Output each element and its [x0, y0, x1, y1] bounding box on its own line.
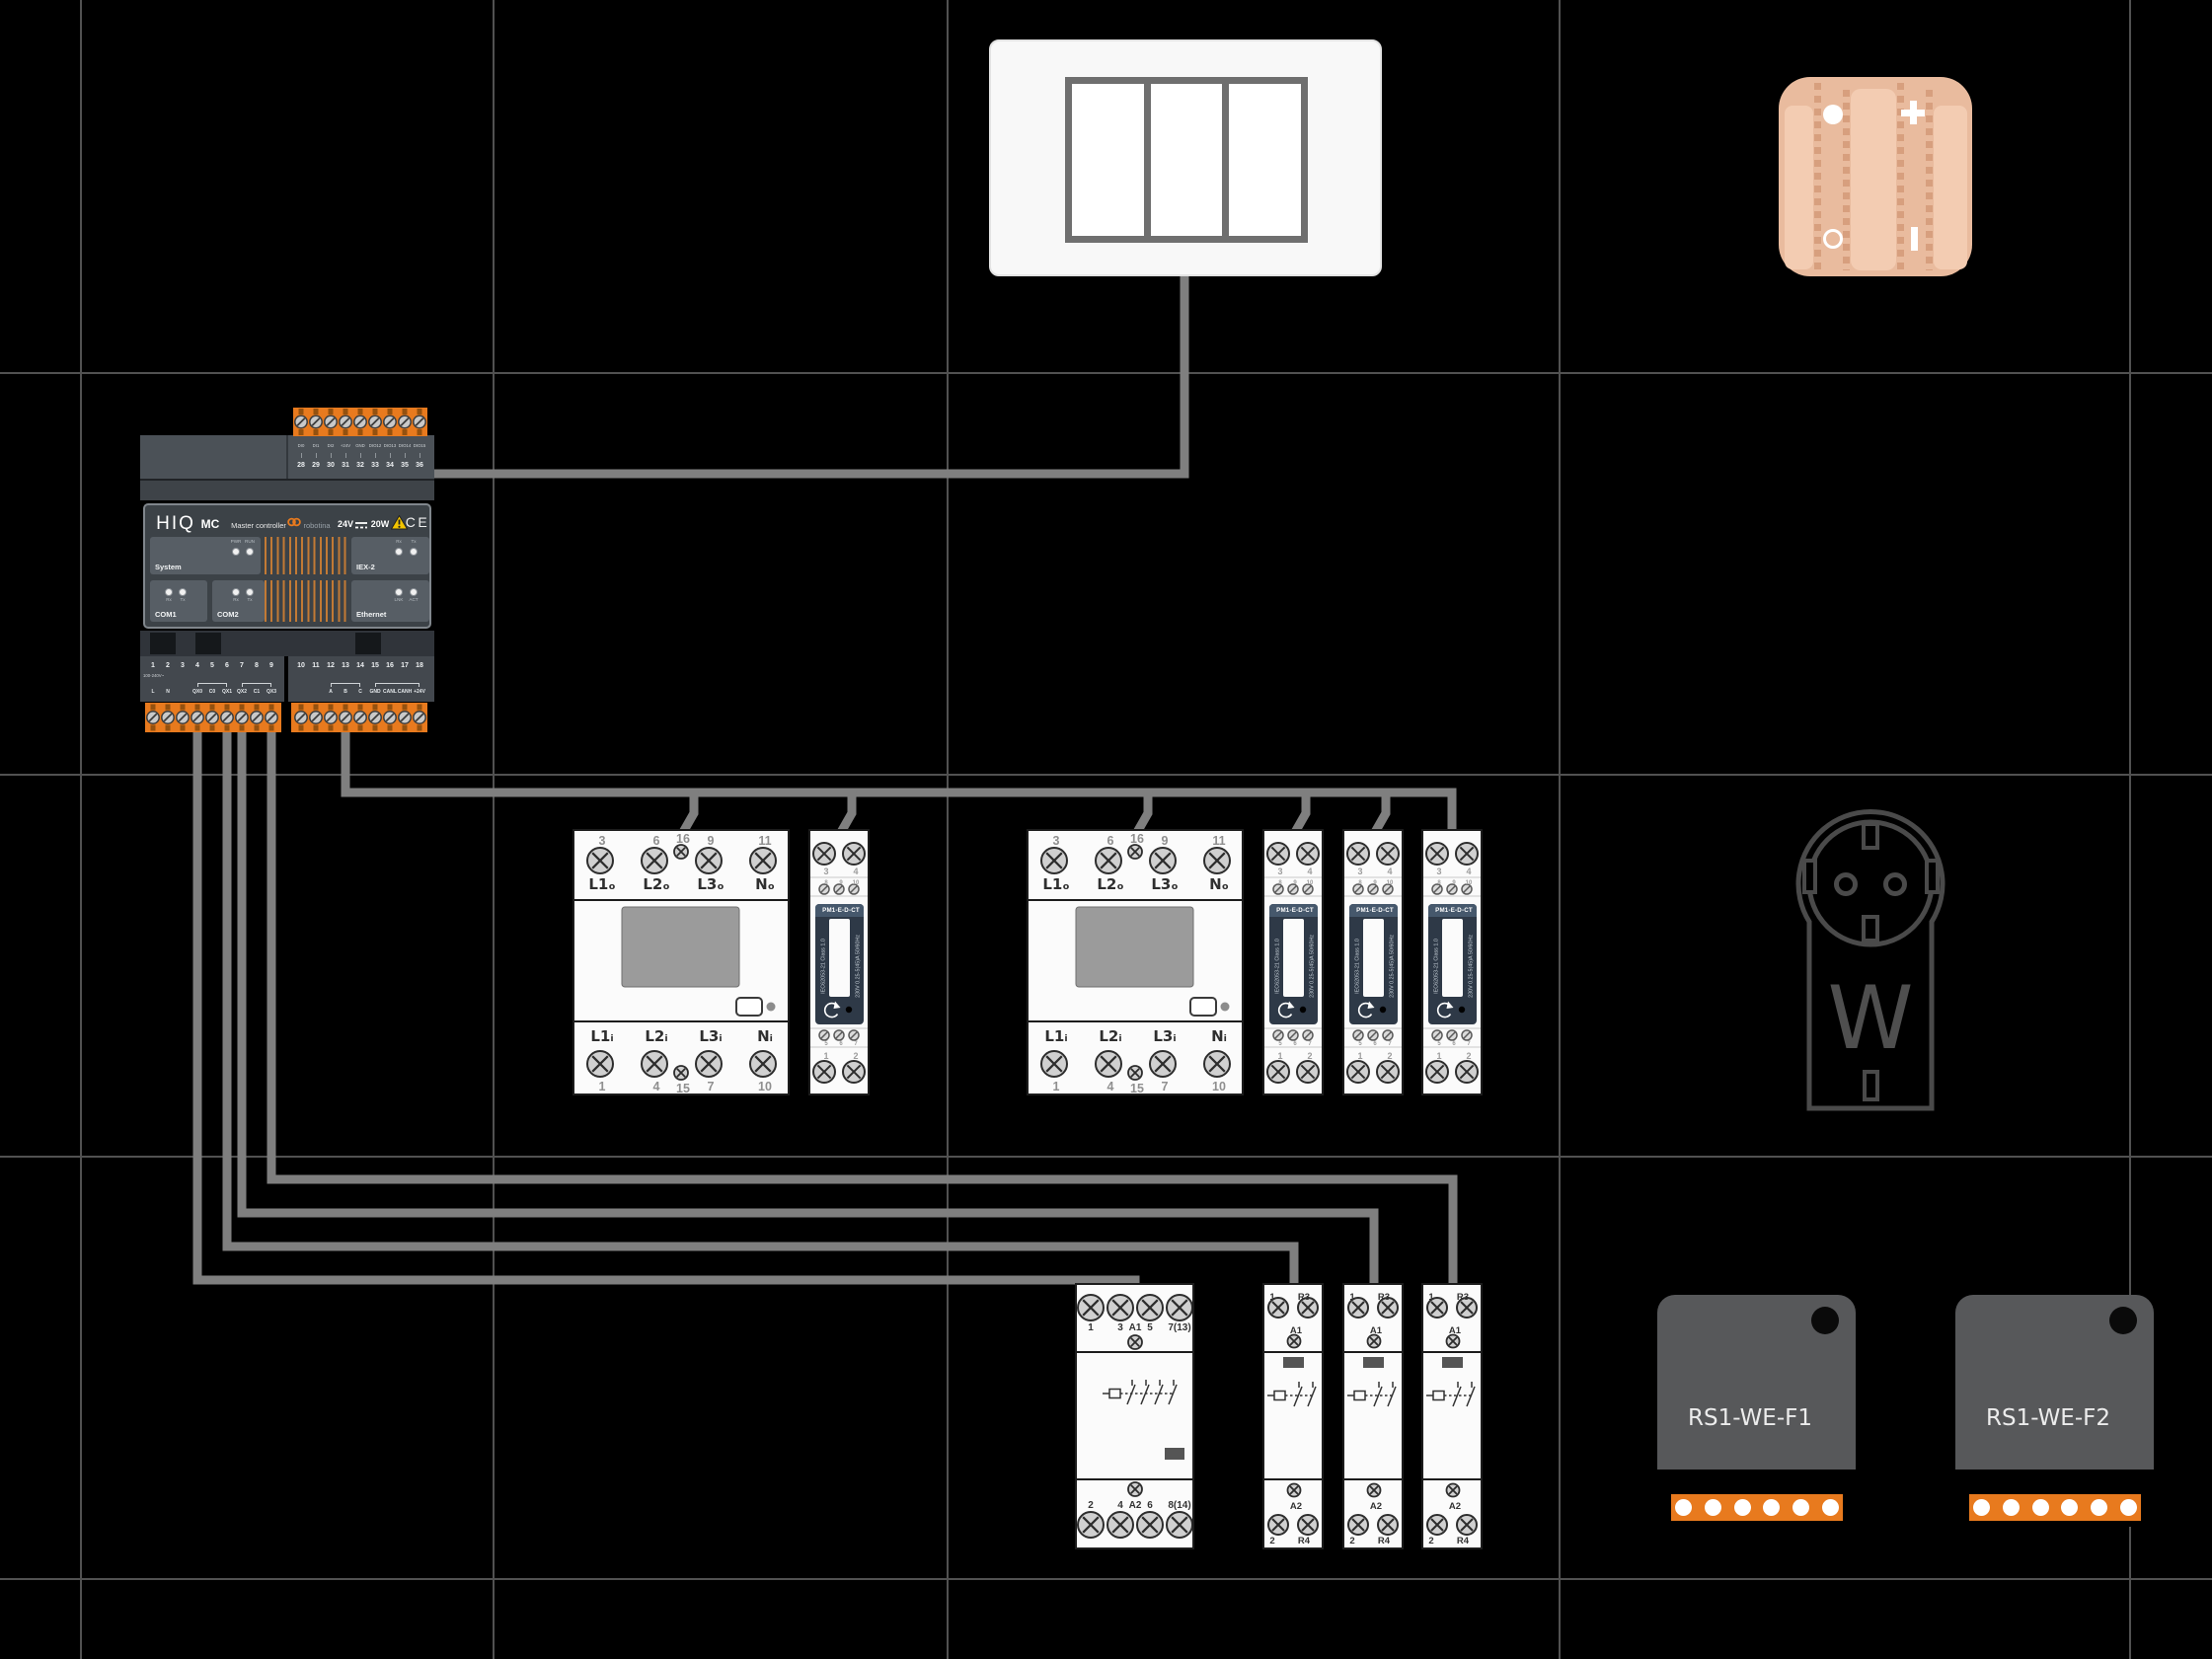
wiring-diagram: W DI0 DI [0, 0, 2212, 1659]
terminal-x-icon [1267, 843, 1289, 865]
panel-iex2: Rx Tx IEX-2 [351, 537, 429, 574]
brand-logo: HIQ [156, 514, 195, 533]
relay-module: 1 R3 A1 A2 2 R4 [1262, 1283, 1324, 1549]
led-com2-rx [232, 588, 240, 596]
fabric-band-right [1934, 106, 1967, 269]
pm1-led [1300, 1007, 1306, 1013]
logo-text: robotina [303, 522, 330, 530]
terminal-dot-icon [2032, 1499, 2049, 1516]
relay-symbol [1426, 1382, 1475, 1406]
screw-icon [369, 705, 381, 731]
terminal-x-icon [1427, 1515, 1447, 1535]
terminal-x-small-icon [1128, 1066, 1142, 1080]
terminal-x-icon [1348, 1515, 1368, 1535]
terminal-x-icon [1297, 843, 1319, 865]
coil-terminal-icon [1288, 1484, 1301, 1497]
terminal-dot-icon [2003, 1499, 2020, 1516]
bottom-left-terminal-block [145, 703, 281, 732]
coil-terminal-icon [1447, 1484, 1460, 1497]
screw-icon [340, 705, 351, 731]
screw-icon [414, 409, 425, 435]
terminal-x-icon [813, 1061, 835, 1083]
vent-slots-lower [265, 580, 347, 622]
circle-filled-icon [1823, 105, 1843, 124]
led-act [410, 588, 418, 596]
terminal-x-icon [1167, 1295, 1192, 1320]
switch-rocker-3 [1229, 84, 1301, 236]
screw-small-icon [834, 1030, 844, 1040]
terminal-x-icon [1204, 1051, 1230, 1077]
fabric-band-center [1851, 89, 1896, 270]
terminal-x-icon [1426, 843, 1448, 865]
terminal-dot-icon [1973, 1499, 1990, 1516]
terminal-dot-icon [1822, 1499, 1839, 1516]
rs1-label: RS1-WE-F1 [1688, 1407, 1812, 1430]
claw-left [1804, 861, 1815, 892]
screw-small-icon [1368, 1030, 1378, 1040]
screw-icon [236, 705, 248, 731]
terminal-x-icon [1137, 1512, 1163, 1538]
pm1-energy-meter: 3 4 8 9 10 PM1-E-D-CT IEC62053-21 Class … [1421, 829, 1483, 1095]
ce-mark: CE [406, 515, 429, 529]
panel-com1: Rx Tx COM1 [150, 580, 207, 622]
screw-icon [177, 705, 189, 731]
terminal-dot-icon [2061, 1499, 2078, 1516]
terminal-x-icon [1167, 1512, 1192, 1538]
led-iex2-tx [410, 548, 418, 556]
screw-icon [384, 409, 396, 435]
terminal-x-small-icon [674, 845, 688, 859]
terminal-dot-icon [2120, 1499, 2137, 1516]
screw-icon [310, 705, 322, 731]
earth-clip-top [1864, 824, 1877, 848]
top-terminal-block [293, 408, 427, 436]
terminal-x-icon [1078, 1295, 1104, 1320]
pm1-led [1459, 1007, 1465, 1013]
coil-terminal-icon [1288, 1335, 1301, 1348]
circle-outline-icon [1823, 229, 1843, 249]
robotina-logo-icon [286, 516, 302, 528]
model-label: MC [201, 518, 220, 530]
pm1-led [846, 1007, 852, 1013]
screw-icon [266, 705, 277, 731]
switch-rocker-1 [1072, 84, 1144, 236]
coil-terminal-icon [1368, 1335, 1381, 1348]
screw-icon [147, 705, 159, 731]
earth-clip-bottom [1864, 917, 1877, 941]
plug-in-energy-meter: W [1798, 811, 1943, 1108]
screw-icon [310, 409, 322, 435]
screw-icon [399, 705, 411, 731]
terminal-x-icon [1150, 1051, 1176, 1077]
state-indicator [1165, 1448, 1184, 1460]
terminal-x-icon [1377, 843, 1399, 865]
terminal-x-icon [843, 1061, 865, 1083]
claw-right [1927, 861, 1938, 892]
screw-icon [340, 409, 351, 435]
rs1-terminal-strip [1969, 1494, 2141, 1521]
meter-button [736, 998, 762, 1016]
lcd-display [1076, 907, 1193, 987]
screw-small-icon [1447, 1030, 1457, 1040]
terminal-dot-icon [1734, 1499, 1751, 1516]
screw-small-icon [1288, 1030, 1298, 1040]
controller-lower-band [140, 631, 434, 656]
led-com1-tx [179, 588, 187, 596]
terminal-x-icon [1041, 1051, 1067, 1077]
state-indicator [1363, 1357, 1384, 1368]
terminal-dot-icon [1763, 1499, 1780, 1516]
relay-module: 1 R3 A1 A2 2 R4 [1342, 1283, 1404, 1549]
screw-icon [191, 705, 203, 731]
hiq-master-controller: DI0 DI1 DI2 +24V GND DIO12 DIO13 DIO14 D… [140, 408, 434, 733]
screw-small-icon [1383, 1030, 1393, 1040]
terminal-x-icon [587, 1051, 613, 1077]
terminal-x-icon [1378, 1515, 1398, 1535]
state-indicator [1283, 1357, 1304, 1368]
screw-icon [206, 705, 218, 731]
vent-slots-upper [265, 537, 347, 574]
screw-icon [414, 705, 425, 731]
terminal-x-icon [642, 1051, 667, 1077]
screw-icon [354, 705, 366, 731]
coil-terminal-icon [1128, 1482, 1142, 1496]
three-phase-energy-meter: 3 6 16 9 11 L1ₒ L2ₒ L3ₒ Nₒ L1ᵢ L2ᵢ L3ᵢ N… [1027, 829, 1244, 1095]
pm1-energy-meter: 3 4 8 9 10 PM1-E-D-CT IEC62053-21 Class … [1262, 829, 1324, 1095]
screw-small-icon [1432, 1030, 1442, 1040]
terminal-x-icon [696, 1051, 722, 1077]
pm1-lcd [1283, 919, 1304, 997]
socket-watt-label: W [1827, 967, 1913, 1069]
coil-terminal-icon [1447, 1335, 1460, 1348]
bottom-right-terminal-block [291, 703, 427, 732]
wall-switch-3gang [989, 39, 1382, 276]
screw-icon [162, 705, 174, 731]
screw-small-icon [1303, 1030, 1313, 1040]
terminal-x-icon [642, 848, 667, 873]
terminal-x-icon [1107, 1295, 1133, 1320]
pm1-energy-meter: 3 4 8 9 10 PM1-E-D-CT IEC62053-21 Class … [1342, 829, 1404, 1095]
fabric-band-left [1785, 106, 1813, 269]
terminal-x-icon [750, 1051, 776, 1077]
terminal-x-icon [750, 848, 776, 873]
rs1-button-icon [2109, 1307, 2137, 1334]
power-voltage: 24V [338, 520, 353, 529]
screw-icon [354, 409, 366, 435]
screw-icon [325, 409, 337, 435]
wire-comm-bus [345, 716, 1452, 836]
terminal-x-icon [1041, 848, 1067, 873]
dc-symbol-icon [354, 521, 368, 530]
wire-switch-to-controller [360, 266, 1184, 474]
screw-icon [325, 705, 337, 731]
bar-icon [1911, 227, 1918, 251]
screw-small-icon [1353, 1030, 1363, 1040]
meter-button [1190, 998, 1216, 1016]
led-lnk [395, 588, 403, 596]
screw-small-icon [1273, 1030, 1283, 1040]
terminal-dot-icon [2091, 1499, 2107, 1516]
rs1-button-icon [1811, 1307, 1839, 1334]
wire-branch-pm1-2 [1294, 792, 1306, 834]
pm1-led [1380, 1007, 1386, 1013]
terminal-x-icon [1137, 1295, 1163, 1320]
contactor-symbol [1103, 1380, 1177, 1404]
lcd-display [622, 907, 739, 987]
three-phase-energy-meter: 3 6 16 9 11 L1ₒ L2ₒ L3ₒ Nₒ L1ᵢ L2ᵢ L3ᵢ N… [572, 829, 790, 1095]
panel-system: PWR RUN System [150, 537, 261, 574]
panel-com2: Rx Tx COM2 [212, 580, 265, 622]
terminal-x-icon [1107, 1512, 1133, 1538]
terminal-x-icon [1377, 1061, 1399, 1083]
screw-small-icon [1462, 1030, 1472, 1040]
screw-icon [369, 409, 381, 435]
wire-branch-pm1-1 [840, 792, 852, 834]
led-com2-tx [246, 588, 254, 596]
terminal-x-icon [1096, 1051, 1121, 1077]
terminal-x-icon [1267, 1061, 1289, 1083]
screw-icon [221, 705, 233, 731]
screw-icon [384, 705, 396, 731]
rs1-label: RS1-WE-F2 [1986, 1407, 2110, 1430]
screw-small-icon [849, 1030, 859, 1040]
terminal-x-icon [1456, 843, 1478, 865]
terminal-x-icon [843, 843, 865, 865]
contactor-4pole: 1 3 A1 5 7(13) 2 4 A2 6 8(14) [1075, 1283, 1194, 1549]
terminal-x-icon [587, 848, 613, 873]
plus-icon-bar-v [1910, 101, 1917, 124]
terminal-x-small-icon [1128, 845, 1142, 859]
screw-icon [251, 705, 263, 731]
terminal-x-icon [1347, 1061, 1369, 1083]
controller-face: HIQ MC Master controller robotina 24V 20… [143, 503, 431, 629]
relay-symbol [1267, 1382, 1316, 1406]
switch-frame [1065, 77, 1308, 243]
screw-icon [295, 705, 307, 731]
bottom-right-labels: 10 11 12 13 14 15 16 17 18 A B C GND CAN… [288, 656, 434, 702]
terminal-x-icon [1297, 1061, 1319, 1083]
terminal-x-icon [696, 848, 722, 873]
terminal-x-icon [1456, 1061, 1478, 1083]
relay-module: 1 R3 A1 A2 2 R4 [1421, 1283, 1483, 1549]
meter-led [767, 1003, 776, 1012]
model-name: Master controller [231, 522, 286, 530]
wire-branch-pm1-3 [1374, 792, 1386, 834]
terminal-x-small-icon [674, 1066, 688, 1080]
power-watts: 20W [371, 520, 390, 529]
controller-thin-band [140, 479, 434, 500]
panel-ethernet: LNK ACT Ethernet [351, 580, 429, 622]
terminal-x-icon [1150, 848, 1176, 873]
screw-small-icon [819, 1030, 829, 1040]
terminal-x-icon [1078, 1512, 1104, 1538]
terminal-dot-icon [1675, 1499, 1692, 1516]
led-com1-rx [165, 588, 173, 596]
state-indicator [1442, 1357, 1463, 1368]
pm1-lcd [1363, 919, 1384, 997]
meter-led [1221, 1003, 1230, 1012]
led-pwr [232, 548, 240, 556]
switch-rocker-2 [1151, 84, 1223, 236]
terminal-x-icon [1457, 1515, 1477, 1535]
fabric-wireless-switch [1779, 77, 1972, 276]
terminal-dot-icon [1705, 1499, 1721, 1516]
terminal-x-icon [1347, 843, 1369, 865]
pm1-energy-meter: 3 4 8 9 10 PM1-E-D-CT IEC62053-21 Class … [808, 829, 870, 1095]
led-run [246, 548, 254, 556]
pm1-lcd [829, 919, 850, 997]
coil-terminal-icon [1128, 1335, 1142, 1349]
led-iex2-rx [395, 548, 403, 556]
terminal-dot-icon [1792, 1499, 1809, 1516]
wire-branch-meter2 [1136, 792, 1148, 834]
rs1-we-wireless-module: RS1-WE-F1 [1657, 1295, 1856, 1527]
terminal-x-icon [813, 843, 835, 865]
terminal-x-icon [1268, 1515, 1288, 1535]
wire-branch-meter1 [682, 792, 694, 834]
terminal-x-icon [1298, 1515, 1318, 1535]
screw-icon [295, 409, 307, 435]
terminal-x-icon [1204, 848, 1230, 873]
terminal-x-icon [1096, 848, 1121, 873]
rs1-we-wireless-module: RS1-WE-F2 [1955, 1295, 2154, 1527]
rs1-terminal-strip [1671, 1494, 1843, 1521]
terminal-x-icon [1426, 1061, 1448, 1083]
pm1-lcd [1442, 919, 1463, 997]
screw-icon [399, 409, 411, 435]
coil-terminal-icon [1368, 1484, 1381, 1497]
relay-symbol [1347, 1382, 1396, 1406]
bottom-left-labels: 1 2 3 4 5 6 7 8 9 100-240V~ L N QX0 C0 Q… [140, 656, 284, 702]
